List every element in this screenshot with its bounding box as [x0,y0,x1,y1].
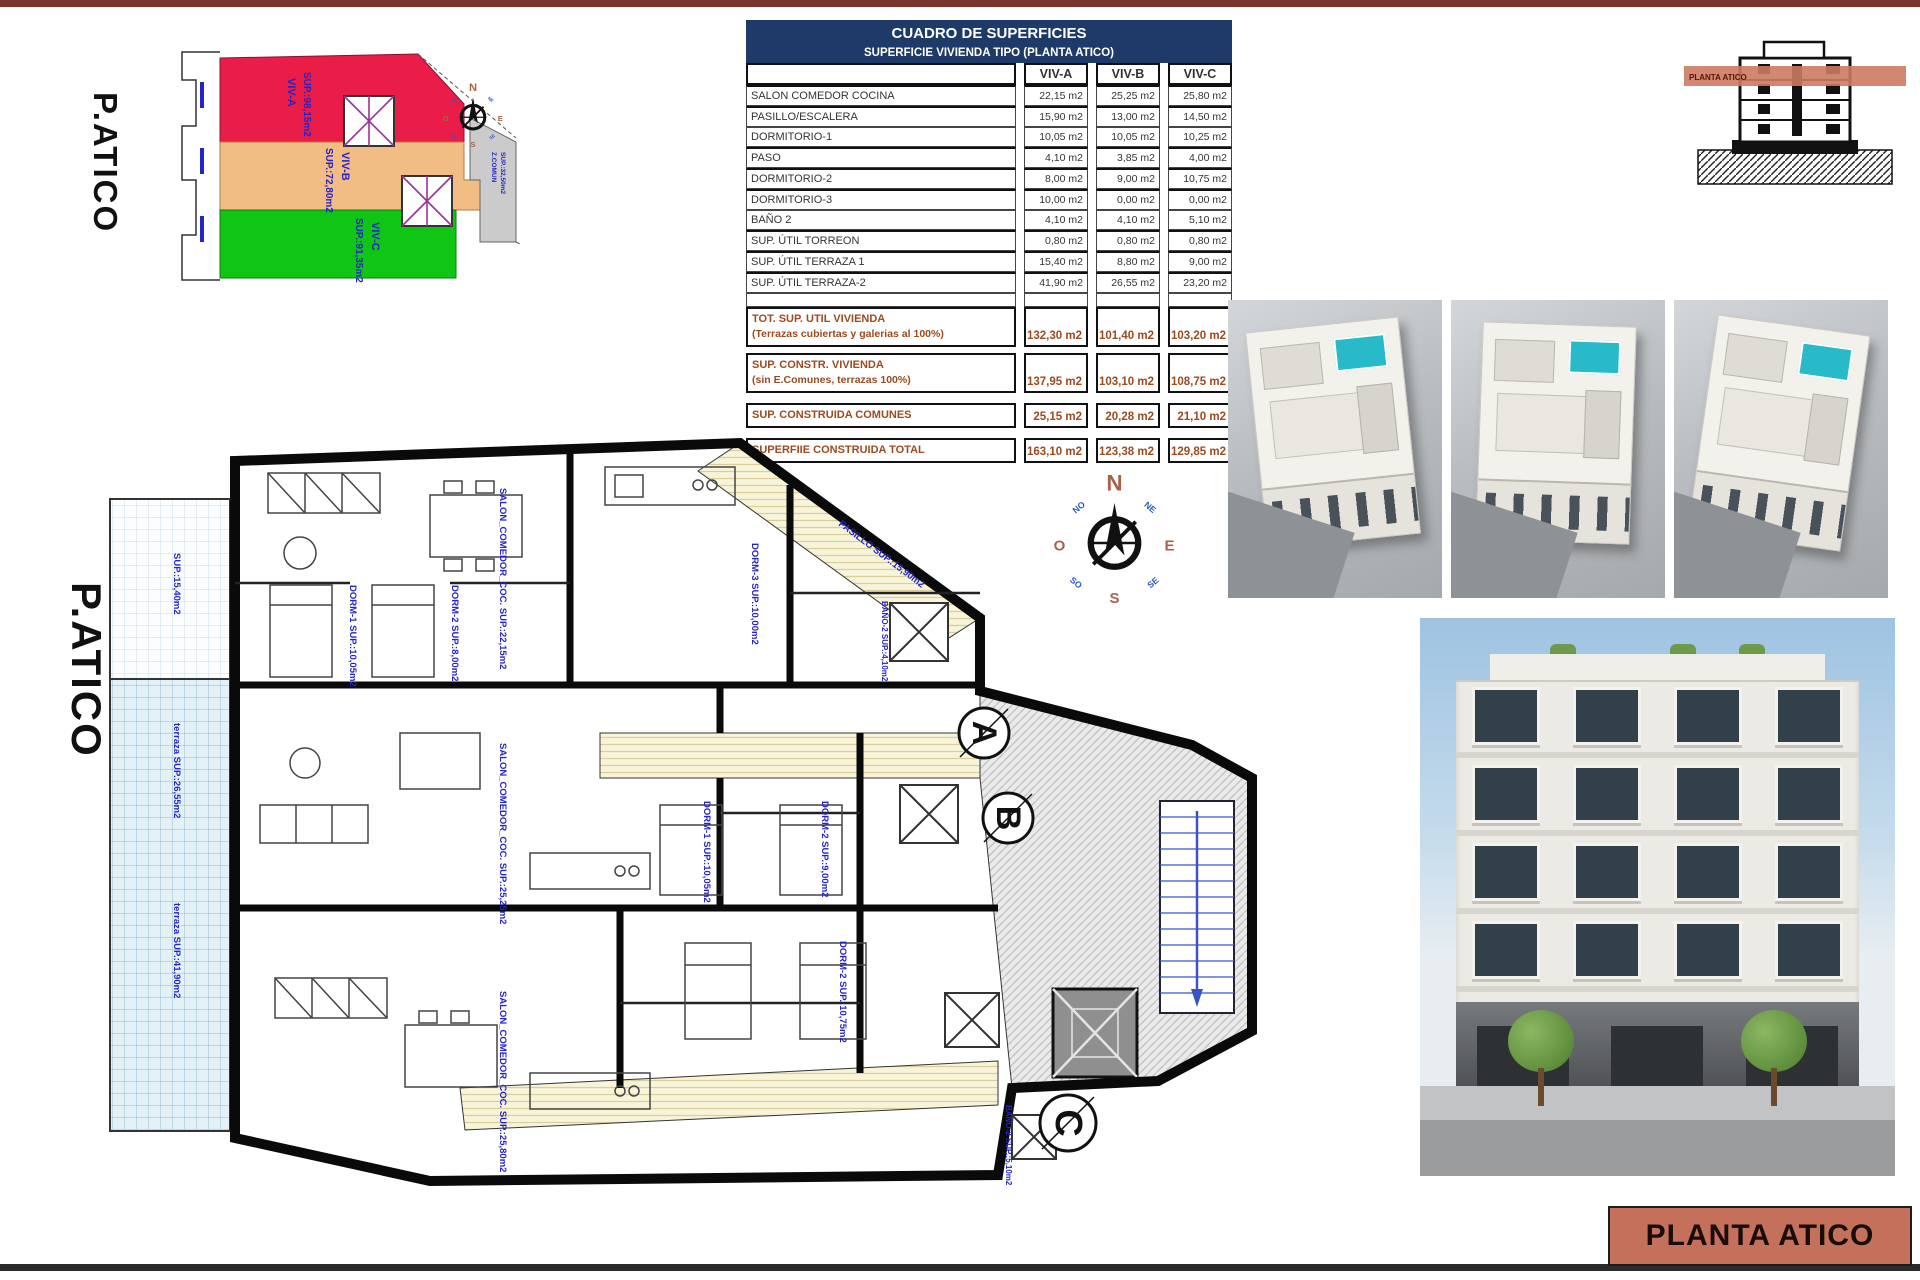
atico-band-label: PLANTA ATICO [1689,73,1747,82]
table-row: DORMITORIO-2 8,00 m2 9,00 m2 10,75 m2 [746,168,1232,189]
summary-label: TOT. SUP. UTIL VIVIENDA [752,313,885,325]
plan-sheet: P.ATICO VIV-A SUP.:98,15m2 VIV-B SUP.:72… [0,0,1920,1280]
facade-render-photo [1420,618,1895,1176]
site-diagram-title: P.ATICO [86,92,124,233]
terrace-sup-mark [200,148,204,174]
terrace-sup-mark [200,82,204,108]
room-label: DORM-2 SUP.:9,00m2 [819,801,830,897]
zone-sup-label: SUP.:91,35m2 [353,218,364,283]
col-viv-a: VIV-A [1024,63,1088,85]
table-row: SALON COMEDOR COCINA 22,15 m2 25,25 m2 2… [746,85,1232,106]
elevator [1053,989,1137,1077]
table-title: CUADRO DE SUPERFICIES [746,20,1232,45]
zone-label: VIV-C [369,222,381,251]
table-column-headers: VIV-A VIV-B VIV-C [746,63,1232,85]
road [1420,1120,1895,1176]
summary-label: SUP. CONSTR. VIVIENDA [752,359,884,371]
unit-marker-a: A [959,708,1009,758]
svg-text:SE: SE [1145,575,1160,590]
svg-text:N: N [469,82,477,94]
room-label: SALON_COMEDOR_COC. SUP.:25,25m2 [497,743,508,924]
terrace-sup-mark [200,216,204,242]
room-label: SUP.:15,40m2 [171,553,182,615]
zone-label: VIV-A [285,78,297,107]
unit-marker-c: C [1040,1095,1096,1151]
rooftop-pool [1797,341,1853,382]
aerial-render-3 [1674,300,1888,598]
table-row: BAÑO 2 4,10 m2 4,10 m2 5,10 m2 [746,210,1232,230]
table-row: PASILLO/ESCALERA 15,90 m2 13,00 m2 14,50… [746,106,1232,127]
col-viv-c: VIV-C [1168,63,1232,85]
room-label: terraza SUP.:26,55m2 [171,723,182,818]
rooftop-pool [1333,333,1388,372]
corner-cell [746,63,1016,85]
svg-text:A: A [965,721,1003,746]
areas-table: CUADRO DE SUPERFICIES SUPERFICIE VIVIEND… [746,20,1232,463]
zone-sup-label: SUP.:32,50m2 [499,152,506,195]
table-row: DORMITORIO-1 10,05 m2 10,05 m2 10,25 m2 [746,127,1232,147]
aerial-render-2 [1451,300,1665,598]
svg-text:SO: SO [450,133,458,141]
table-row: PASO 4,10 m2 3,85 m2 4,00 m2 [746,147,1232,168]
summary-row-comunes: SUP. CONSTRUIDA COMUNES 25,15 m2 20,28 m… [746,403,1232,428]
entrance-opening [1611,1026,1703,1086]
terrace-left [110,499,230,1131]
summary-sublabel: (sin E.Comunes, terrazas 100%) [752,373,1010,388]
table-row: SUP. ÚTIL TORREON 0,80 m2 0,80 m2 0,80 m… [746,230,1232,251]
zone-label: VIV-B [339,152,351,181]
ground-hatch [1698,150,1892,184]
room-label: BAÑO-2 SUP.:5,10m2 [1004,1105,1013,1186]
street-tree [1506,1010,1576,1106]
parcel-outline [182,52,220,280]
sidewalk [1420,1086,1895,1120]
room-label: SALON_COMEDOR_COC. SUP.:25,80m2 [497,991,508,1172]
svg-text:S: S [1109,590,1119,607]
section-building [1740,42,1850,142]
table-subtitle: SUPERFICIE VIVIENDA TIPO (PLANTA ATICO) [746,45,1232,63]
aerial-renders [1228,300,1888,598]
svg-text:O: O [1054,538,1066,555]
room-label: terraza SUP.:41,90m2 [171,903,182,998]
svg-text:NO: NO [451,95,460,103]
sheet-title-block: PLANTA ATICO [1608,1206,1912,1266]
summary-row-constr: SUP. CONSTR. VIVIENDA (sin E.Comunes, te… [746,353,1232,393]
summary-row-total-util: TOT. SUP. UTIL VIVIENDA (Terrazas cubier… [746,307,1232,347]
table-spacer [746,293,1232,307]
aerial-render-1 [1228,300,1442,598]
svg-text:NE: NE [1142,500,1158,516]
room-label: BAÑO-2 SUP.:4,10m2 [880,601,889,682]
table-row: DORMITORIO-3 10,00 m2 0,00 m2 0,00 m2 [746,189,1232,210]
compass-needle [1088,503,1141,567]
compass-rose-icon: N S E O NE NO SE SO [1052,468,1177,608]
table-row: SUP. ÚTIL TERRAZA-2 41,90 m2 26,55 m2 23… [746,272,1232,293]
room-label: DORM-2 SUP.:10,75m2 [837,941,848,1043]
svg-text:E: E [1164,538,1174,555]
svg-text:NE: NE [487,96,495,104]
sheet-title: PLANTA ATICO [1646,1219,1875,1253]
svg-text:N: N [1106,471,1122,496]
compass-rose-icon: N S E O NE NO SE SO [442,80,504,149]
table-row: SUP. ÚTIL TERRAZA 1 15,40 m2 8,80 m2 9,0… [746,251,1232,272]
summary-sublabel: (Terrazas cubiertas y galerias al 100%) [752,327,1010,342]
top-border-bar [0,0,1920,7]
zone-sup-label: SUP.:98,15m2 [301,72,312,137]
svg-text:SE: SE [488,133,496,141]
unit-marker-b: B [983,793,1033,843]
room-label: DORM-3 SUP.:10,00m2 [749,543,760,645]
zone-viv-a [220,54,464,142]
zone-sup-label: SUP.:72,80m2 [323,148,334,213]
svg-text:NO: NO [1070,499,1087,515]
site-zoning-diagram: VIV-A SUP.:98,15m2 VIV-B SUP.:72,80m2 VI… [120,30,520,310]
svg-text:S: S [471,140,476,149]
stairs [1160,801,1234,1013]
room-label: DORM-1 SUP.:10,05m2 [701,801,712,903]
room-label: SALON_COMEDOR_COC. SUP.:22,15m2 [497,488,508,669]
room-label: DORM-2 SUP.:8,00m2 [449,585,460,681]
street-tree [1739,1010,1809,1106]
compass-needle [460,97,486,129]
rooftop-pool [1568,339,1621,375]
svg-text:B: B [989,806,1027,831]
building-section-thumbnail: PLANTA ATICO [1680,28,1910,196]
svg-text:O: O [443,114,449,123]
svg-text:SO: SO [1068,575,1084,591]
col-viv-b: VIV-B [1096,63,1160,85]
svg-text:C: C [1047,1109,1089,1136]
svg-text:E: E [498,114,503,123]
corridor-hatch-middle [600,733,980,778]
zone-label: Z.COMUN [490,152,497,183]
room-label: DORM-1 SUP.:10,05m2 [347,585,358,687]
